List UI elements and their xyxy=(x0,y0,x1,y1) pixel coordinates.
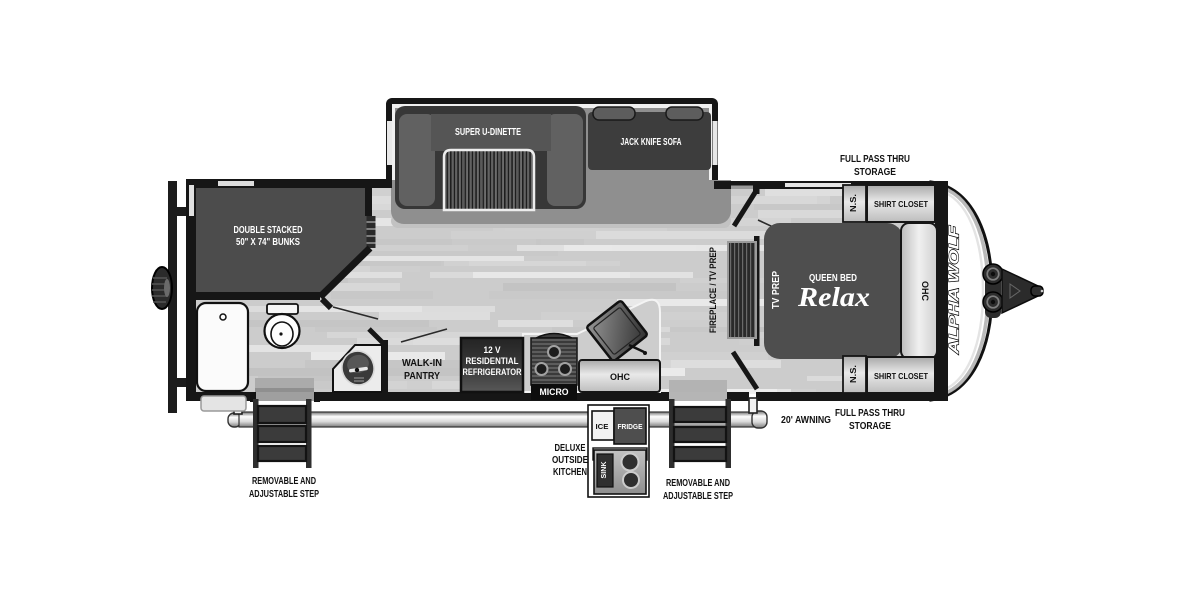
svg-text:FULL PASS THRU: FULL PASS THRU xyxy=(840,153,910,165)
svg-text:SHIRT CLOSET: SHIRT CLOSET xyxy=(874,371,929,381)
svg-text:TV PREP: TV PREP xyxy=(771,271,782,309)
svg-text:REMOVABLE AND: REMOVABLE AND xyxy=(252,475,316,487)
svg-text:12 V: 12 V xyxy=(484,345,501,355)
svg-text:DELUXE: DELUXE xyxy=(555,443,586,454)
svg-text:OHC: OHC xyxy=(919,281,930,301)
svg-text:MICRO: MICRO xyxy=(540,387,569,398)
svg-text:ADJUSTABLE STEP: ADJUSTABLE STEP xyxy=(249,488,319,500)
svg-text:STORAGE: STORAGE xyxy=(849,420,891,432)
svg-text:FIREPLACE / TV PREP: FIREPLACE / TV PREP xyxy=(708,246,719,333)
svg-text:SUPER U-DINETTE: SUPER U-DINETTE xyxy=(455,126,521,138)
svg-text:Relax: Relax xyxy=(797,282,870,312)
svg-text:FRIDGE: FRIDGE xyxy=(618,422,643,431)
svg-text:KITCHEN: KITCHEN xyxy=(553,467,587,478)
svg-text:50" X 74" BUNKS: 50" X 74" BUNKS xyxy=(236,236,300,248)
svg-text:RESIDENTIAL: RESIDENTIAL xyxy=(466,356,519,366)
svg-text:REFRIGERATOR: REFRIGERATOR xyxy=(463,367,522,377)
svg-text:JACK KNIFE SOFA: JACK KNIFE SOFA xyxy=(621,136,682,148)
svg-text:ALPHA WOLF: ALPHA WOLF xyxy=(946,225,962,355)
svg-text:N.S.: N.S. xyxy=(848,365,858,383)
svg-text:WALK-IN: WALK-IN xyxy=(402,357,442,369)
svg-text:20' AWNING: 20' AWNING xyxy=(781,414,831,426)
svg-text:ICE: ICE xyxy=(596,422,609,431)
svg-text:REMOVABLE AND: REMOVABLE AND xyxy=(666,477,730,489)
svg-text:N.S.: N.S. xyxy=(848,194,858,212)
svg-text:DOUBLE STACKED: DOUBLE STACKED xyxy=(234,224,303,236)
svg-text:ADJUSTABLE STEP: ADJUSTABLE STEP xyxy=(663,490,733,502)
svg-text:PANTRY: PANTRY xyxy=(404,370,440,382)
svg-text:SHIRT CLOSET: SHIRT CLOSET xyxy=(874,199,929,209)
svg-text:SINK: SINK xyxy=(601,462,608,479)
svg-text:FULL PASS THRU: FULL PASS THRU xyxy=(835,407,905,419)
svg-text:STORAGE: STORAGE xyxy=(854,166,896,178)
svg-text:OHC: OHC xyxy=(610,372,630,383)
svg-text:OUTSIDE: OUTSIDE xyxy=(552,455,588,466)
